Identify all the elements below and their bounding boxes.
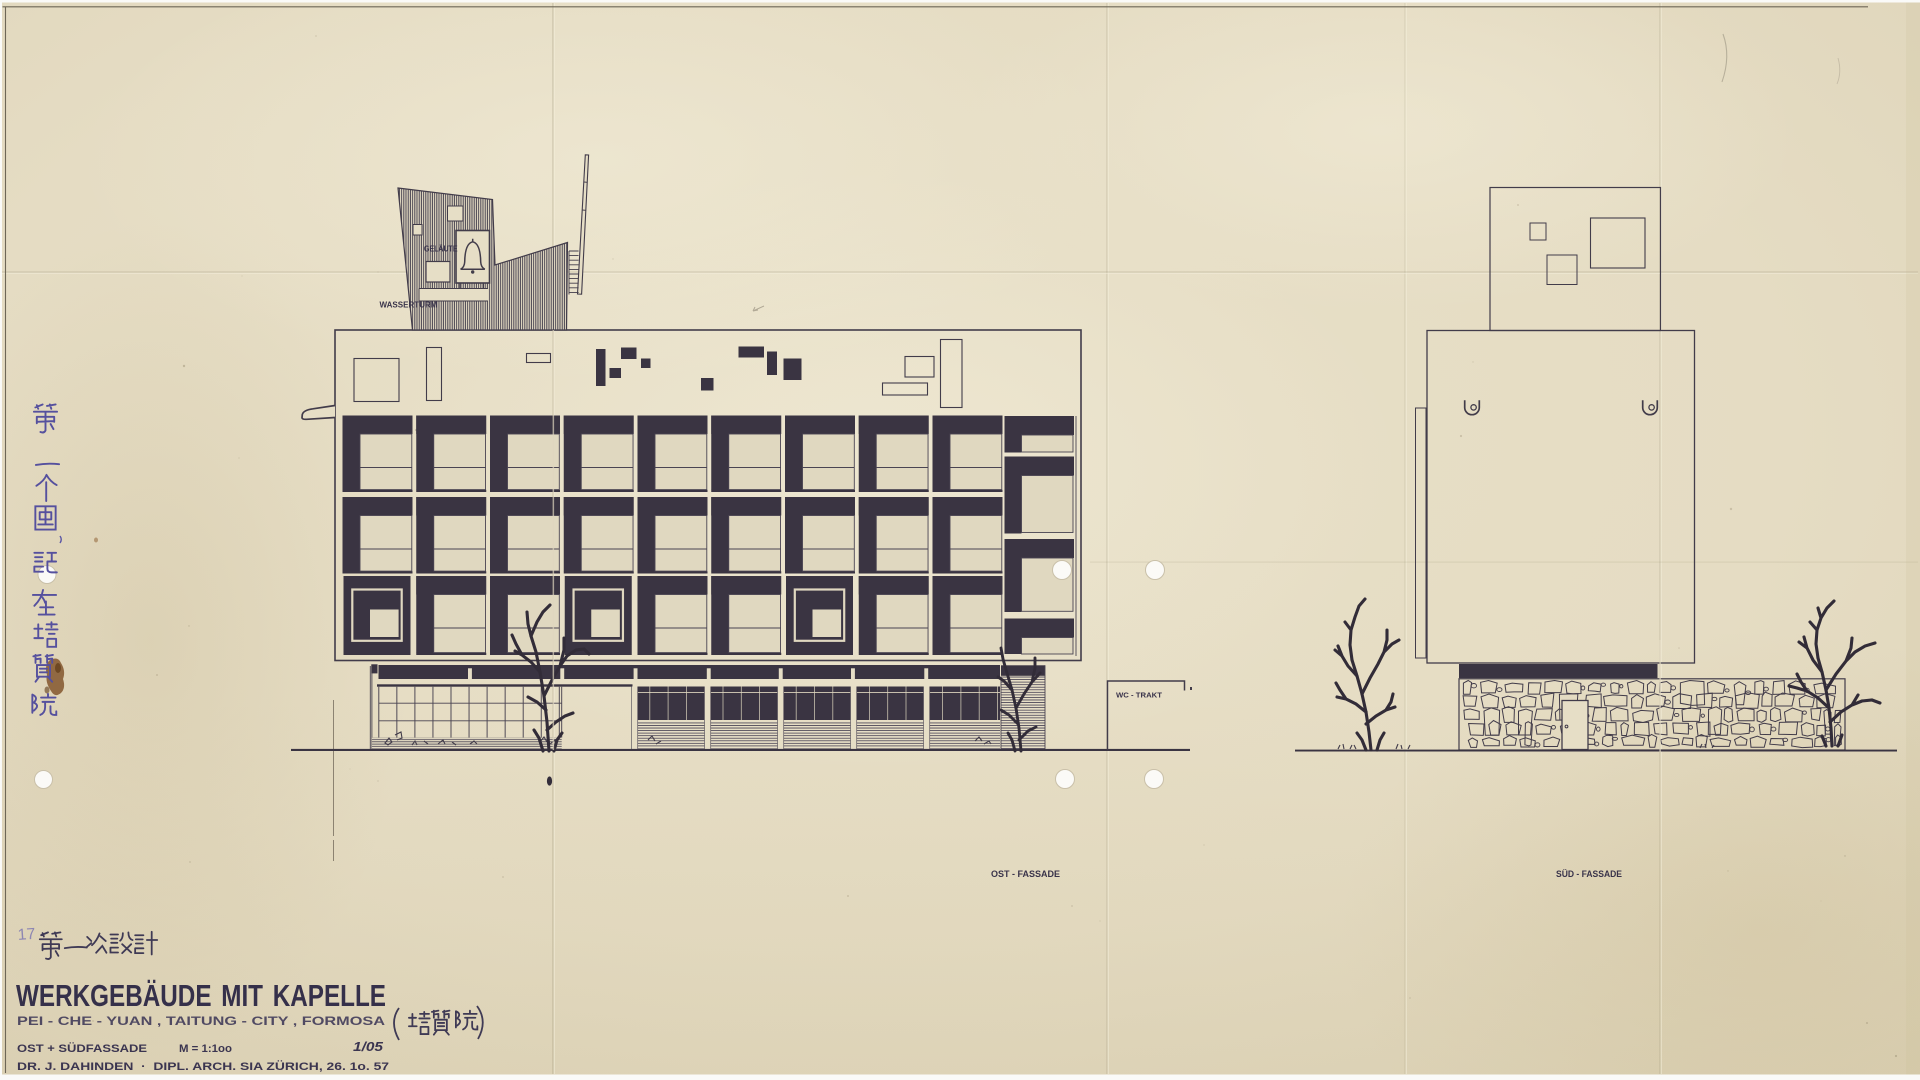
svg-text:1/05: 1/05	[353, 1040, 384, 1054]
svg-text:DR. J. DAHINDEN · DIPL. ARCH: DR. J. DAHINDEN · DIPL. ARCH. SIA ZÜRICH…	[17, 1060, 389, 1073]
svg-text:OST + SÜDFASSADE: OST + SÜDFASSADE	[17, 1042, 147, 1055]
svg-text:17: 17	[17, 926, 36, 944]
svg-text:WC - TRAKT: WC - TRAKT	[1116, 691, 1162, 700]
svg-text:SÜD - FASSADE: SÜD - FASSADE	[1556, 869, 1622, 879]
svg-text:M = 1:1oo: M = 1:1oo	[179, 1043, 232, 1055]
svg-text:GELÄUTE: GELÄUTE	[424, 245, 458, 254]
svg-text:WASSERTURM: WASSERTURM	[380, 301, 438, 310]
svg-text:WERKGEBÄUDE MIT KAPELLE: WERKGEBÄUDE MIT KAPELLE	[16, 978, 386, 1013]
svg-text:OST - FASSADE: OST - FASSADE	[991, 869, 1060, 879]
svg-text:PEI - CHE - YUAN , TAITUNG - C: PEI - CHE - YUAN , TAITUNG - CITY , FORM…	[17, 1014, 385, 1028]
